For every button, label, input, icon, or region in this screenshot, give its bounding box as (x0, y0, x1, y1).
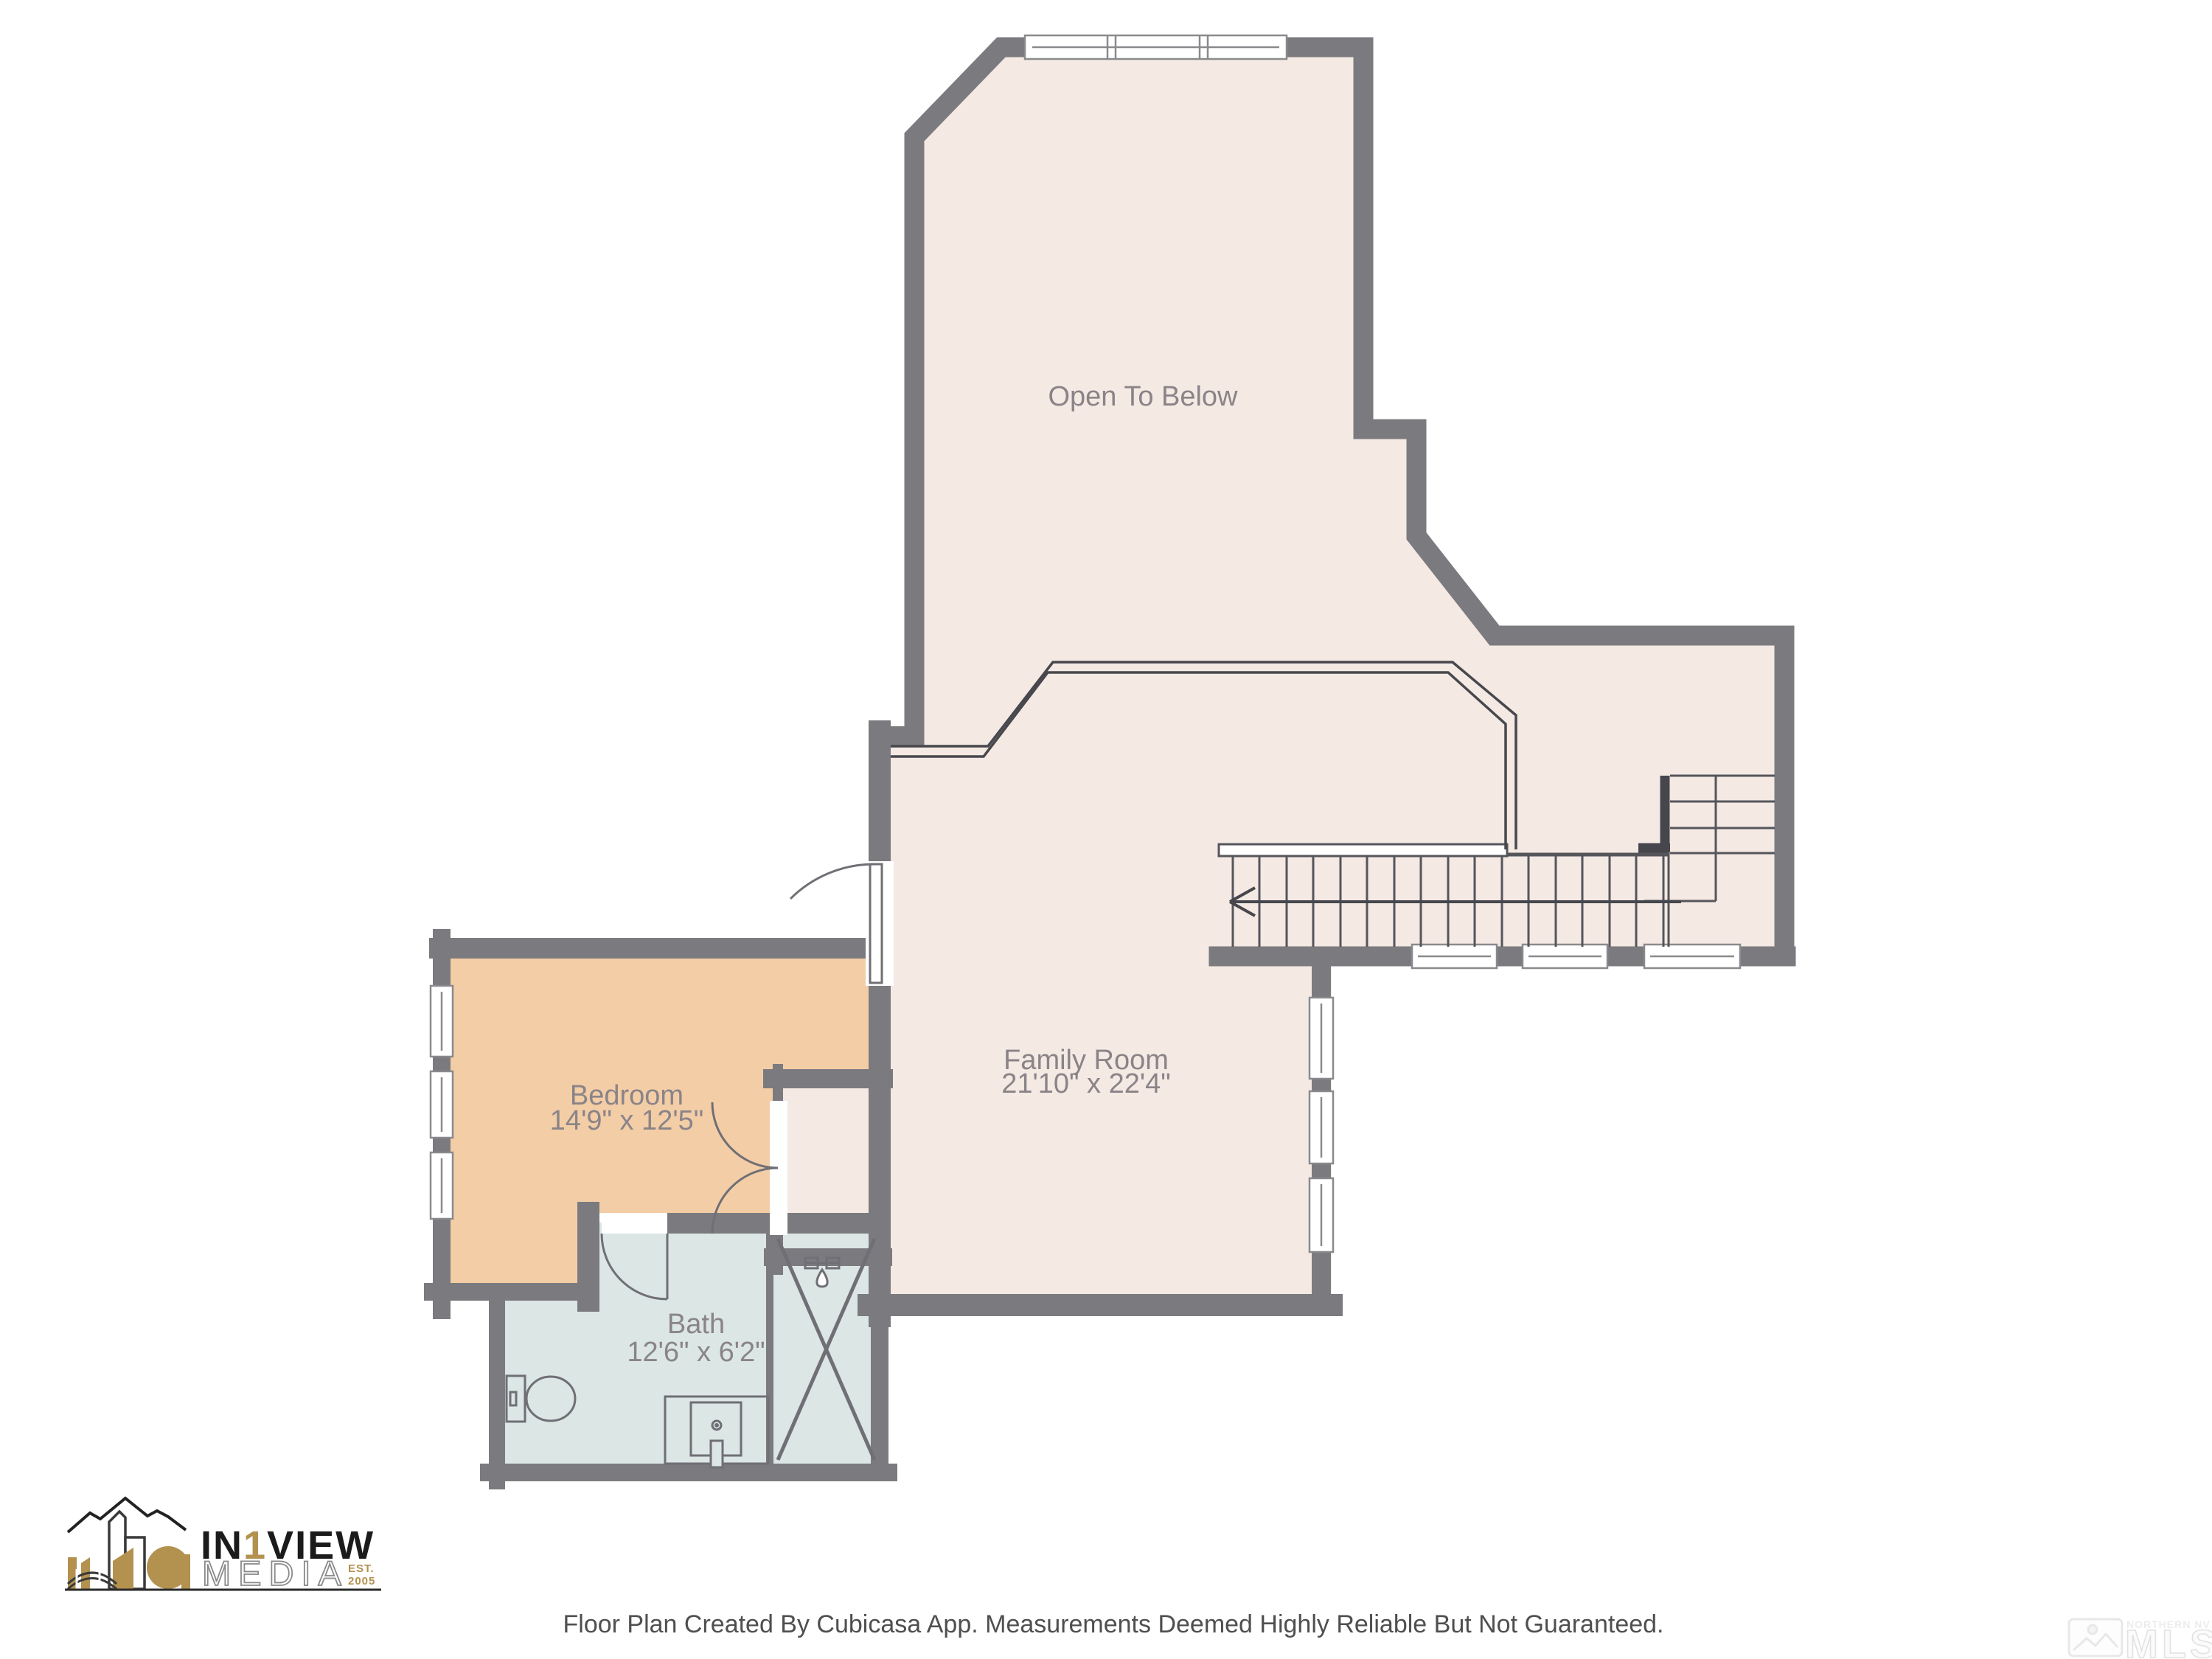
logo-est-text: EST. (348, 1562, 375, 1575)
floor-plan-page: Open To Below Family Room 21'10" x 22'4"… (0, 0, 2212, 1659)
mls-watermark: NORTHERN NV REGIONAL MLS (2069, 1618, 2212, 1659)
room-label-open-to-below: Open To Below (1048, 381, 1238, 412)
floor-plan-canvas: Open To Below Family Room 21'10" x 22'4"… (0, 0, 2212, 1659)
window-family-right (1310, 998, 1333, 1252)
mls-text: MLS (2125, 1622, 2212, 1659)
room-dims-family-room: 21'10" x 22'4" (1001, 1068, 1171, 1099)
disclaimer-text: Floor Plan Created By Cubicasa App. Meas… (563, 1610, 1664, 1638)
room-dims-bedroom: 14'9" x 12'5" (550, 1105, 703, 1136)
room-label-bath: Bath (667, 1309, 725, 1340)
window-stairs-bottom (1412, 945, 1740, 968)
logo-year-text: 2005 (348, 1575, 375, 1587)
stair-stringer (1219, 844, 1507, 856)
room-dims-bath: 12'6" x 6'2" (627, 1337, 765, 1368)
company-logo: IN1VIEW MEDIA EST. 2005 (65, 1498, 381, 1593)
window-bedroom-left (431, 986, 453, 1219)
logo-media-text: MEDIA (202, 1554, 349, 1593)
room-floors (450, 47, 1784, 1472)
logo-mountains-icon (68, 1498, 186, 1532)
window-top (1025, 35, 1287, 59)
door-arc (790, 864, 874, 899)
mls-image-icon (2069, 1619, 2122, 1656)
